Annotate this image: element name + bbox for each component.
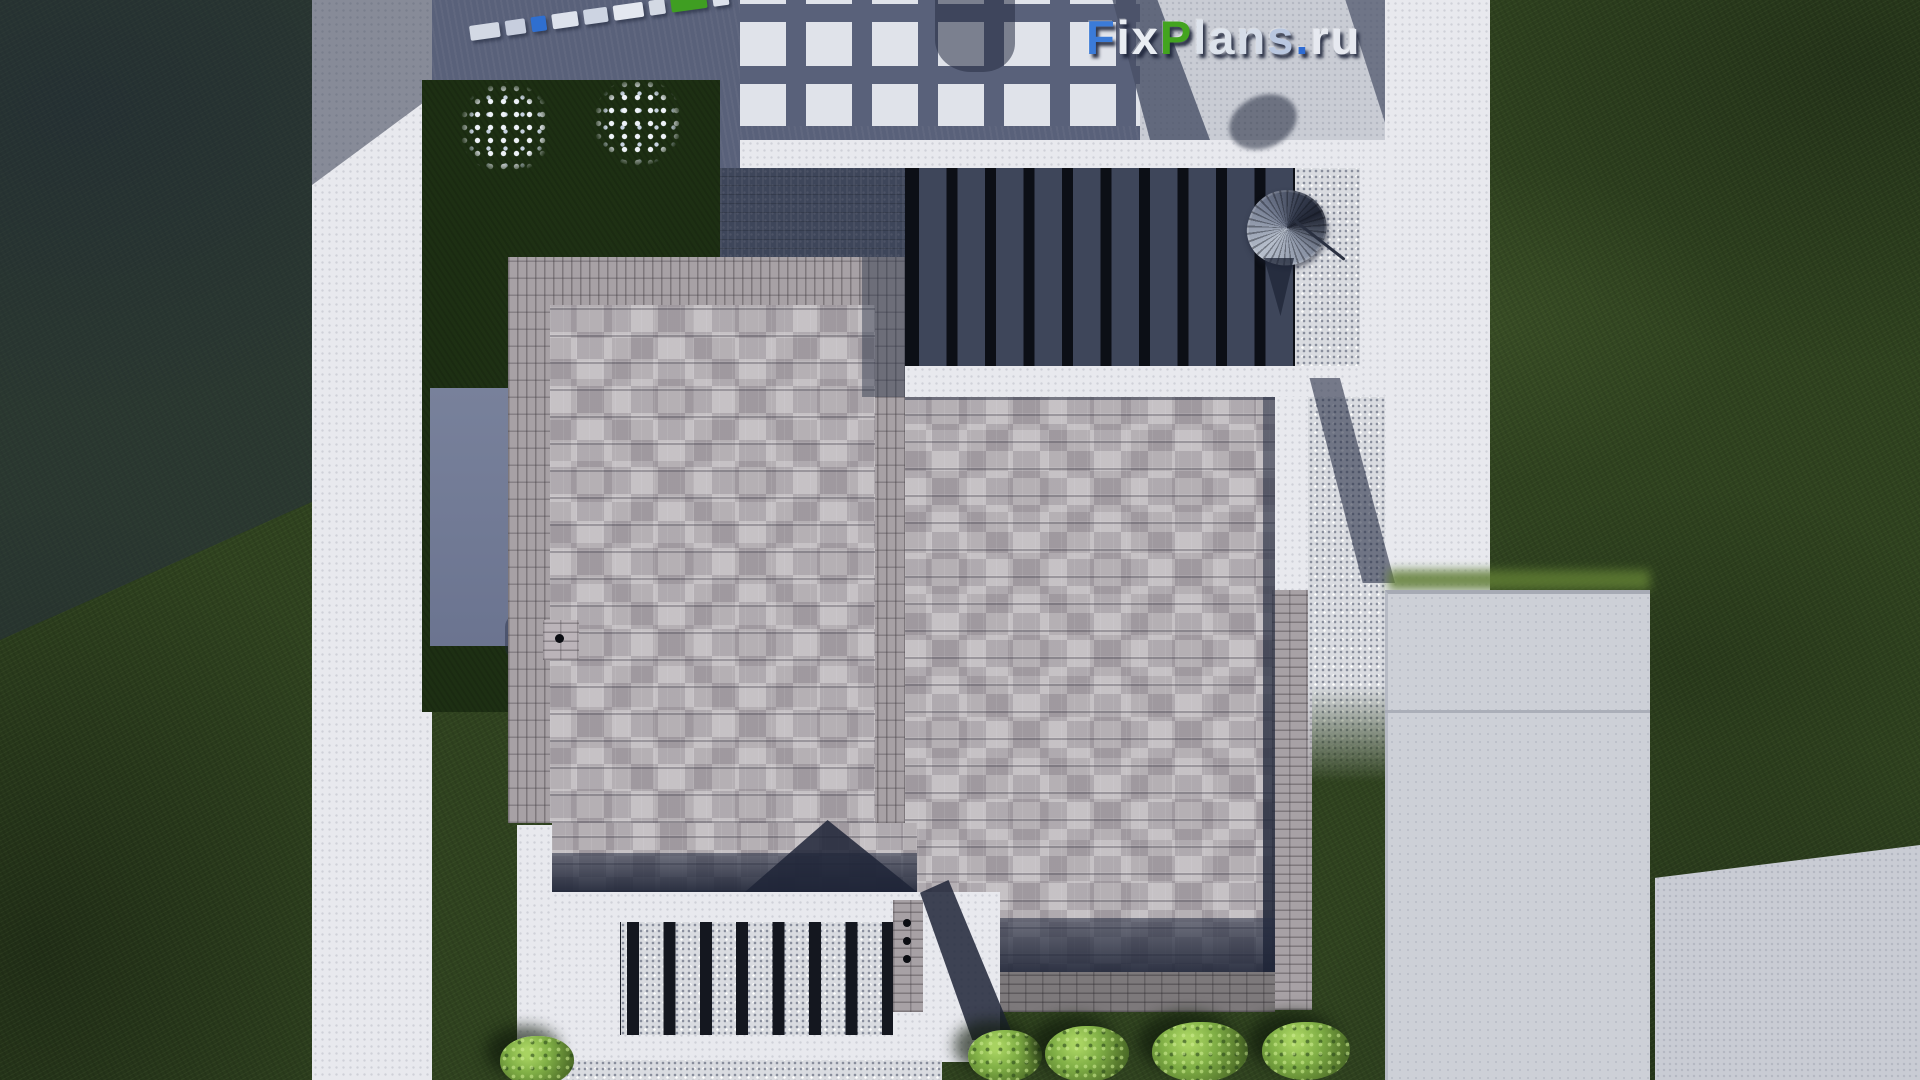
mini-watermark-block (530, 15, 547, 32)
bush-2 (968, 1030, 1042, 1080)
bush-5 (1262, 1022, 1350, 1080)
bush-4 (1152, 1022, 1248, 1080)
logo-letter: x (1132, 14, 1159, 61)
site-plan-render: FixPlans.ru (0, 0, 1920, 1080)
logo-letter: n (1236, 14, 1266, 61)
roof-brick-border-right (1272, 590, 1312, 1010)
logo-letter: i (1117, 14, 1131, 61)
drain-dot-1 (903, 919, 911, 927)
terrace-slatted-floor (620, 922, 893, 1035)
roof-edge-white-band (1275, 397, 1308, 593)
concrete-slab-right (1385, 590, 1650, 1080)
logo-letter: a (1208, 14, 1235, 61)
logo-letter: u (1331, 14, 1361, 61)
wood-deck-plain (720, 168, 905, 258)
logo-letter: s (1267, 14, 1294, 61)
concrete-corner-bottom-right (1655, 845, 1920, 1080)
logo-letter: . (1295, 14, 1309, 61)
drain-dot-2 (903, 937, 911, 945)
flowering-bush-1 (458, 82, 554, 174)
roof-block-left (508, 257, 905, 823)
path-right-of-pergola (1385, 0, 1490, 592)
flowering-bush-2 (592, 78, 684, 166)
fixplans-logo[interactable]: FixPlans.ru (1086, 14, 1360, 61)
logo-letter: P (1160, 14, 1192, 61)
mini-watermark-block (648, 0, 666, 16)
slab-seam-line (1385, 710, 1650, 713)
walkway-band-top (740, 140, 1400, 170)
terrace-lower-path (552, 1060, 942, 1080)
walkway-band-mid (905, 366, 1360, 398)
bush-1 (500, 1036, 574, 1080)
bush-3 (1045, 1026, 1129, 1080)
shaded-path-left-of-roof (430, 388, 512, 646)
pergola-post-shadow-blob (935, 0, 1015, 72)
roof-shingles-left (550, 305, 875, 823)
logo-letter: r (1310, 14, 1329, 61)
mini-watermark-block (505, 18, 527, 36)
roof-vent-dot (555, 634, 564, 643)
sunlit-grass-band (1388, 570, 1650, 590)
pergola-slatted-deck (905, 168, 1295, 366)
logo-letter: F (1086, 14, 1116, 61)
drain-dot-3 (903, 955, 911, 963)
egg-chair (1248, 190, 1326, 266)
roof-corner-shadow (862, 257, 905, 397)
logo-letter: l (1193, 14, 1207, 61)
